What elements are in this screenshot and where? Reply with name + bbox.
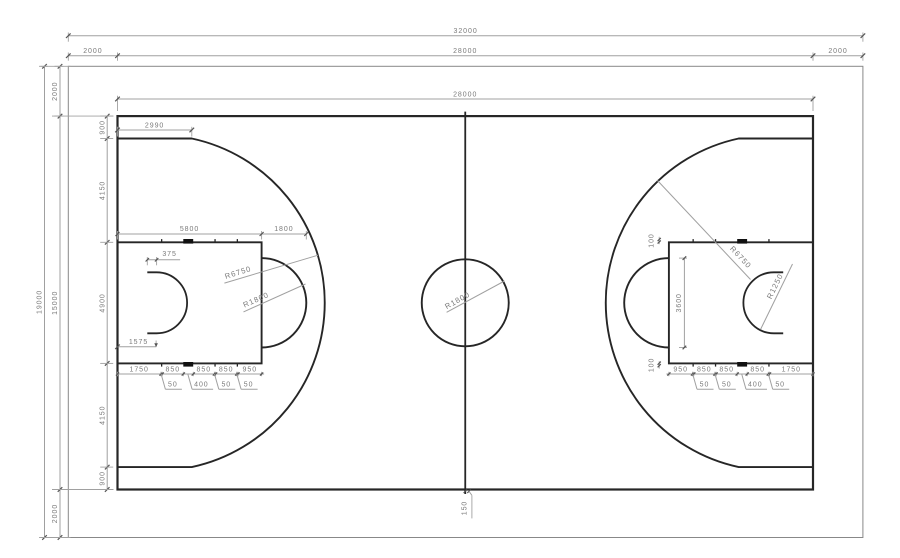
svg-text:400: 400 — [748, 382, 763, 389]
svg-text:50: 50 — [221, 382, 231, 389]
svg-text:2000: 2000 — [52, 82, 59, 101]
svg-text:850: 850 — [697, 367, 712, 374]
svg-text:2000: 2000 — [828, 48, 847, 55]
svg-text:32000: 32000 — [453, 28, 477, 35]
svg-text:900: 900 — [99, 471, 106, 486]
svg-text:900: 900 — [99, 120, 106, 135]
svg-text:950: 950 — [243, 367, 258, 374]
svg-text:4900: 4900 — [99, 293, 106, 312]
svg-text:375: 375 — [162, 251, 177, 258]
svg-text:100: 100 — [649, 358, 656, 373]
svg-text:2000: 2000 — [83, 48, 102, 55]
svg-text:5800: 5800 — [180, 226, 199, 233]
svg-text:19000: 19000 — [37, 290, 44, 314]
svg-text:2990: 2990 — [145, 122, 164, 129]
svg-text:150: 150 — [462, 501, 469, 516]
svg-text:50: 50 — [775, 382, 785, 389]
svg-text:50: 50 — [244, 382, 254, 389]
svg-text:50: 50 — [722, 382, 732, 389]
svg-text:400: 400 — [194, 382, 209, 389]
svg-text:4150: 4150 — [99, 181, 106, 200]
svg-text:850: 850 — [166, 367, 181, 374]
svg-text:850: 850 — [219, 367, 234, 374]
svg-text:850: 850 — [197, 367, 212, 374]
svg-text:1575: 1575 — [129, 339, 148, 346]
svg-text:15000: 15000 — [52, 291, 59, 315]
svg-text:50: 50 — [700, 382, 710, 389]
svg-text:850: 850 — [719, 367, 734, 374]
svg-text:100: 100 — [649, 233, 656, 248]
svg-text:950: 950 — [673, 367, 688, 374]
svg-text:850: 850 — [750, 367, 765, 374]
svg-text:28000: 28000 — [453, 48, 477, 55]
svg-text:1750: 1750 — [782, 367, 801, 374]
svg-text:R1800: R1800 — [443, 290, 471, 311]
svg-text:4150: 4150 — [99, 406, 106, 425]
svg-text:28000: 28000 — [453, 91, 477, 98]
svg-text:2000: 2000 — [52, 504, 59, 523]
svg-text:R6750: R6750 — [224, 264, 253, 281]
svg-text:50: 50 — [168, 382, 178, 389]
svg-text:1800: 1800 — [274, 226, 293, 233]
svg-text:3600: 3600 — [676, 293, 683, 312]
svg-text:R6750: R6750 — [728, 244, 753, 270]
svg-text:1750: 1750 — [130, 367, 149, 374]
